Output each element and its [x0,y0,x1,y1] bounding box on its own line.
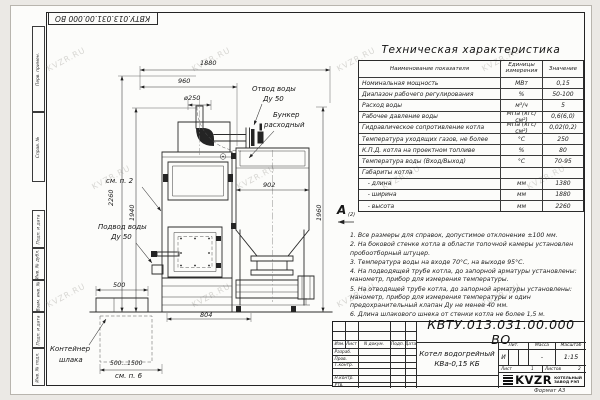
spec-header-row: Наименование показателяЕдиницы измерения… [359,61,583,77]
format-label: Формат А3 [534,388,565,394]
note-item: 5. На отводящей трубе котла, до запорной… [350,286,585,311]
side-col-vzam-inv: Взам. инв. № [32,280,45,312]
kvzr-logo-icon [503,375,513,385]
spec-cell: мм [500,201,543,211]
tb-lit-header: Лит. [499,343,528,349]
kvzr-logo-text: KVZR [515,373,552,387]
spec-row: Номинальная мощностьМВт0,15 [359,77,583,88]
dim-right-height: 1960 [315,204,323,221]
spec-cell: МПа (кгс/см²) [500,112,543,122]
label-water-inlet-dn: Ду 50 [111,233,132,241]
spec-cell: Диапазон рабочего регулирования [359,91,500,98]
label-hopper: Бункер [273,111,300,119]
spec-row: Гидравлическое сопротивление котлаМПа (к… [359,122,583,133]
spec-row: Габариты котла [359,167,583,178]
dim-chimney-diameter: ø250 [184,94,200,102]
tb-sheets-value: 2 [578,367,581,372]
spec-cell: % [500,89,543,99]
note-item: 4. На подводящей трубе котла, до запорно… [350,268,585,285]
spec-cell: МПа (кгс/см²) [500,123,543,133]
tb-lit-value: И [499,350,508,364]
label-water-outlet-dn: Ду 50 [263,95,284,103]
dim-container-travel: 500...1500 [110,360,142,367]
spec-row: Диапазон рабочего регулирования%50-100 [359,88,583,99]
label-water-inlet: Подвод воды [98,223,147,231]
spec-cell [500,168,543,178]
label-slag-container-2: шлака [59,356,83,364]
spec-cell: МВт [500,78,543,88]
spec-row: - ширинамм1880 [359,189,583,200]
spec-cell: Расход воды [359,102,500,109]
spec-cell: °С [500,134,543,144]
side-col-perv-primen: Перв. примен. [32,26,45,112]
side-col-inv-dubl: Инв. № дубл. [32,248,45,280]
dim-base-width: 804 [200,311,212,319]
note-item: 1. Все размеры для справок, допустимое о… [350,232,585,240]
spec-cell: мм [500,179,543,189]
spec-cell: Наименование показателя [359,66,500,72]
spec-cell: 5 [543,102,583,109]
tb-row-tkontr: Т.контр. [335,363,354,368]
tb-company-cell: KVZR КОТЕЛЬНЫЙ ЗАВОД РЭП [499,372,586,388]
tb-scale-value: 1:15 [556,350,586,364]
spec-cell: 80 [543,147,583,154]
tb-doc-name: Котел водогрейный КВа-0,15 КБ [417,344,497,374]
view-a-letter: А [337,203,346,217]
door-bolts [180,238,210,267]
note-item: 3. Температура воды на входе 70°С, на вы… [350,259,585,267]
spec-cell: Рабочее давление воды [359,113,500,120]
side-col-podp-data-1: Подп. и дата [32,210,45,248]
dim-container-width: 500 [113,281,125,289]
tb-scale-header: Масштаб [556,343,586,349]
spec-cell: 1380 [543,180,583,187]
label-slag-container: Контейнер [50,345,90,353]
dim-hopper-width: 902 [263,181,275,189]
spec-cell: 1880 [543,191,583,198]
corner-designation-text: КВТУ.013.031.00.000 ВО [55,14,150,23]
spec-row: К.П.Д. котла на проектном топливе%80 [359,144,583,155]
tb-col-data: Дата [405,342,416,347]
spec-row: - высотамм2260 [359,200,583,211]
spec-cell: м³/ч [500,100,543,110]
label-hopper-2: расходный [264,121,305,129]
spec-cell: Температура уходящих газов, не более [359,136,500,143]
spec-row: Расход водым³/ч5 [359,99,583,110]
tb-row-utv: Утв. [335,383,344,388]
technical-notes: 1. Все размеры для справок, допустимое о… [350,232,585,330]
spec-cell: К.П.Д. котла на проектном топливе [359,147,500,154]
tb-col-ndokum: N докум. [359,342,389,347]
dim-total-height: 2260 [107,189,115,206]
spec-cell: Номинальная мощность [359,80,500,87]
spec-cell: мм [500,190,543,200]
spec-row: Температура уходящих газов, не более°С25… [359,133,583,144]
drawing-sheet-page: { "watermark": { "text": "KVZR.RU" }, "f… [0,0,600,400]
label-water-outlet: Отвод воды [252,85,296,93]
spec-cell: - высота [359,203,500,210]
spec-cell: Гидравлическое сопротивление котла [359,124,500,131]
tb-col-izm: Изм. [334,342,345,347]
spec-row: Рабочее давление водыМПа (кгс/см²)0,6(6,… [359,111,583,122]
side-col-podp-data-2: Подп. и дата [32,312,45,348]
spec-cell: Температура воды (Вход/Выход) [359,158,500,165]
spec-cell: - длина [359,180,500,187]
tb-row-razrab: Разраб. [335,350,352,355]
spec-cell: °С [500,156,543,166]
spec-cell: 2260 [543,203,583,210]
view-a-sheet-ref: (2) [348,212,355,218]
spec-row: - длинамм1380 [359,178,583,189]
spec-table: Наименование показателяЕдиницы измерения… [358,60,584,212]
tb-row-nkontr: Н.контр. [335,376,354,381]
feed-hopper [236,148,314,312]
tb-sheets-label: Листов [545,367,561,372]
tb-col-list: Лист [346,342,357,347]
spec-cell: Габариты котла [359,169,500,176]
tb-row-prov: Пров. [335,357,348,362]
label-see-note-6: см. п. 6 [115,372,142,380]
spec-cell: % [500,145,543,155]
title-block: Изм. Лист N докум. Подп. Дата Разраб. Пр… [332,321,585,387]
dim-mid-height: 1940 [128,204,136,221]
tb-mass-header: Масса [529,343,555,349]
spec-cell: 0,6(6,0) [543,113,583,120]
spec-cell: 70-95 [543,158,583,165]
tb-designation: КВТУ.013.031.00.000 ВО [417,323,585,341]
dim-left-width: 960 [178,77,190,85]
spec-cell: 50-100 [543,91,583,98]
label-see-note-2: см. п. 2 [106,177,133,185]
tb-mass-value: - [529,350,555,364]
spec-cell: 250 [543,136,583,143]
company-name: КОТЕЛЬНЫЙ ЗАВОД РЭП [554,376,582,385]
spec-cell: Значение [543,66,583,72]
note-item: 2. На боковой стенке котла в области топ… [350,241,585,258]
tb-col-podp: Подп. [391,342,404,347]
spec-cell: Единицы измерения [500,61,543,77]
spec-row: Температура воды (Вход/Выход)°С70-95 [359,155,583,166]
side-col-sprav-n: Справ. № [32,112,45,182]
spec-cell: 0,15 [543,80,583,87]
slag-container [96,298,152,362]
dim-overall-width: 1880 [200,59,217,67]
spec-cell: 0,02(0,2) [543,124,583,131]
spec-cell: - ширина [359,191,500,198]
corner-designation-box: КВТУ.013.031.00.000 ВО [48,12,158,25]
tb-sheet-value: 1 [531,367,534,372]
spec-table-title: Техническая характеристика [358,44,584,56]
tb-sheet-label: Лист [501,367,512,372]
side-col-inv-podl: Инв. № подл. [32,348,45,386]
